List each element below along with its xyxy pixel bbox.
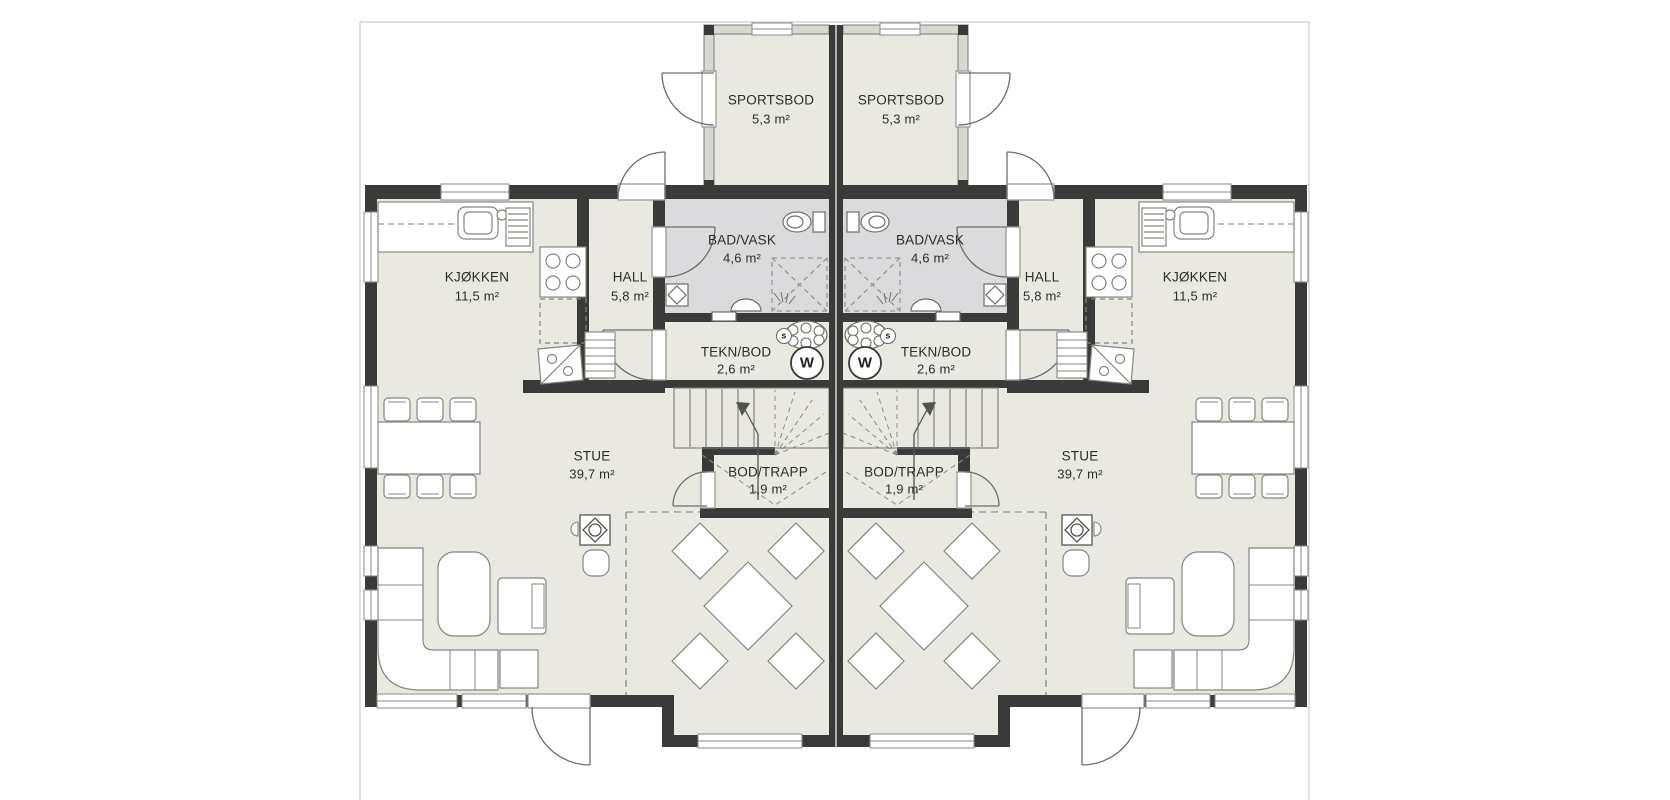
room-area-hall-left: 5,8 m² [611,290,649,303]
room-area-teknbod-left: 2,6 m² [717,363,755,376]
room-area-stue-right: 39,7 m² [1057,468,1102,481]
room-area-badvask-right: 4,6 m² [911,252,949,265]
room-label-kjokken-left: KJØKKEN [445,270,509,284]
room-area-badvask-left: 4,6 m² [723,252,761,265]
room-area-bodtrapp-left: 1,9 m² [749,483,787,496]
room-label-teknbod-left: TEKN/BOD [701,345,772,359]
room-area-bodtrapp-right: 1,9 m² [885,483,923,496]
water-heater-icon-right: s [885,332,890,341]
washing-machine-icon-left: W [800,356,814,371]
room-label-stue-right: STUE [1062,449,1099,463]
water-heater-icon-left: s [781,332,786,341]
room-label-sportsbod-right: SPORTSBOD [858,93,944,107]
room-area-stue-left: 39,7 m² [569,468,614,481]
room-label-sportsbod-left: SPORTSBOD [728,93,814,107]
room-label-badvask-left: BAD/VASK [708,233,776,247]
floor-plan-page: SPORTSBOD 5,3 m² BAD/VASK 4,6 m² HALL 5,… [0,0,1670,800]
room-area-kjokken-left: 11,5 m² [455,290,500,303]
room-area-teknbod-right: 2,6 m² [917,363,955,376]
room-area-hall-right: 5,8 m² [1023,290,1061,303]
unit-left [364,23,829,765]
room-label-badvask-right: BAD/VASK [896,233,964,247]
room-area-kjokken-right: 11,5 m² [1173,290,1218,303]
room-label-bodtrapp-right: BOD/TRAPP [864,465,944,479]
room-label-teknbod-right: TEKN/BOD [901,345,972,359]
room-area-sportsbod-left: 5,3 m² [752,113,790,126]
room-label-bodtrapp-left: BOD/TRAPP [728,465,808,479]
room-label-hall-right: HALL [1025,270,1060,284]
room-label-kjokken-right: KJØKKEN [1163,270,1227,284]
unit-right [843,23,1308,765]
room-label-stue-left: STUE [574,449,611,463]
room-area-sportsbod-right: 5,3 m² [882,113,920,126]
room-label-hall-left: HALL [613,270,648,284]
floor-plan-drawing [0,0,1670,800]
washing-machine-icon-right: W [858,356,872,371]
